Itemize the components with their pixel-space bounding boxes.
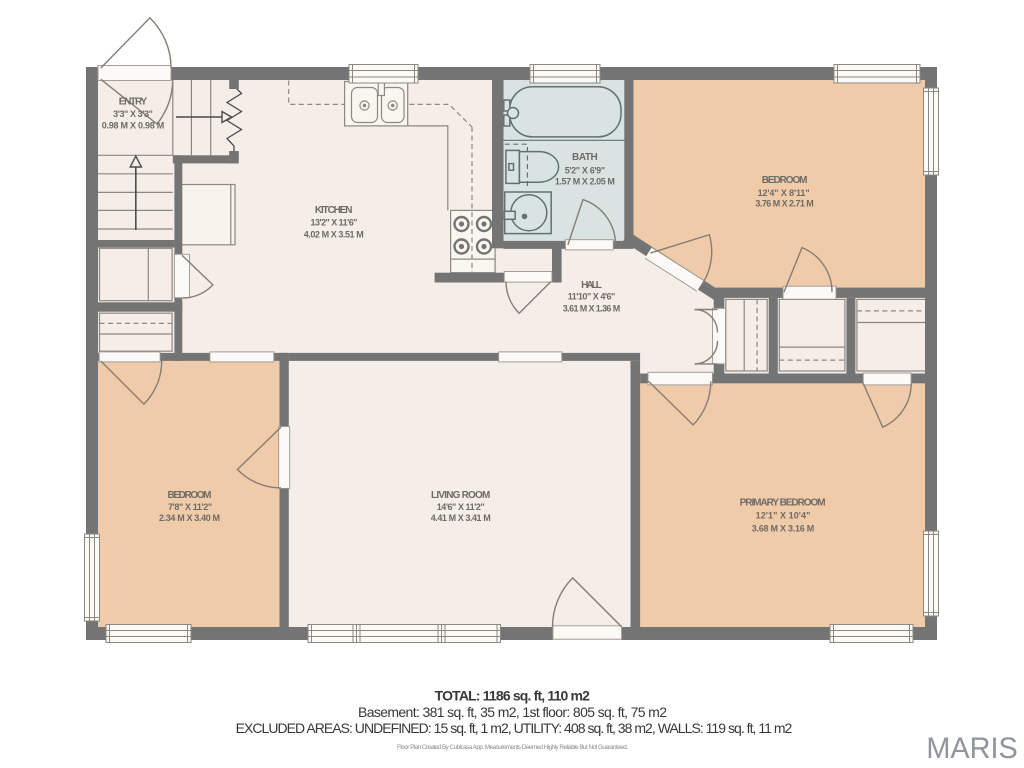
svg-text:2.34 M X 3.40 M: 2.34 M X 3.40 M [159,513,220,523]
svg-text:HALL: HALL [581,280,602,291]
svg-text:Basement: 381 sq. ft, 35 m2, 1: Basement: 381 sq. ft, 35 m2, 1st floor: … [358,704,667,720]
svg-text:BATH: BATH [572,152,598,163]
svg-text:0.98 M X 0.98 M: 0.98 M X 0.98 M [102,120,164,130]
svg-text:13'2" X 11'6": 13'2" X 11'6" [311,217,358,227]
svg-text:3'3" X 3'3": 3'3" X 3'3" [113,109,153,119]
svg-text:EXCLUDED AREAS: UNDEFINED: 15: EXCLUDED AREAS: UNDEFINED: 15 sq. ft, 1 … [236,720,793,736]
svg-text:TOTAL: 1186 sq. ft, 110 m2: TOTAL: 1186 sq. ft, 110 m2 [435,688,591,704]
svg-text:PRIMARY BEDROOM: PRIMARY BEDROOM [740,498,826,509]
svg-text:MARIS: MARIS [926,732,1017,765]
svg-text:5'2" X 6'9": 5'2" X 6'9" [565,165,605,175]
svg-text:12'4" X 8'11": 12'4" X 8'11" [758,188,810,198]
svg-text:LIVING ROOM: LIVING ROOM [431,490,490,501]
svg-text:14'6" X 11'2": 14'6" X 11'2" [437,502,485,512]
svg-text:3.61 M X 1.36 M: 3.61 M X 1.36 M [563,304,620,314]
svg-text:ENTRY: ENTRY [119,97,148,108]
svg-text:Floor Plan Created By Cubicasa: Floor Plan Created By Cubicasa App. Meas… [397,744,628,751]
svg-text:4.02 M X 3.51 M: 4.02 M X 3.51 M [304,229,364,239]
svg-text:BEDROOM: BEDROOM [168,490,212,501]
svg-text:KITCHEN: KITCHEN [315,205,353,216]
svg-text:BEDROOM: BEDROOM [762,175,808,186]
svg-text:3.76 M X 2.71 M: 3.76 M X 2.71 M [755,199,813,209]
svg-text:7'8" X 11'2": 7'8" X 11'2" [168,502,212,512]
svg-text:12'1" X 10'4": 12'1" X 10'4" [756,511,811,521]
svg-text:1.57 M X 2.05 M: 1.57 M X 2.05 M [555,176,615,186]
svg-text:11'10" X 4'6": 11'10" X 4'6" [568,291,616,301]
svg-text:4.41 M X 3.41 M: 4.41 M X 3.41 M [431,513,491,523]
svg-text:3.68 M X 3.16 M: 3.68 M X 3.16 M [752,524,815,534]
